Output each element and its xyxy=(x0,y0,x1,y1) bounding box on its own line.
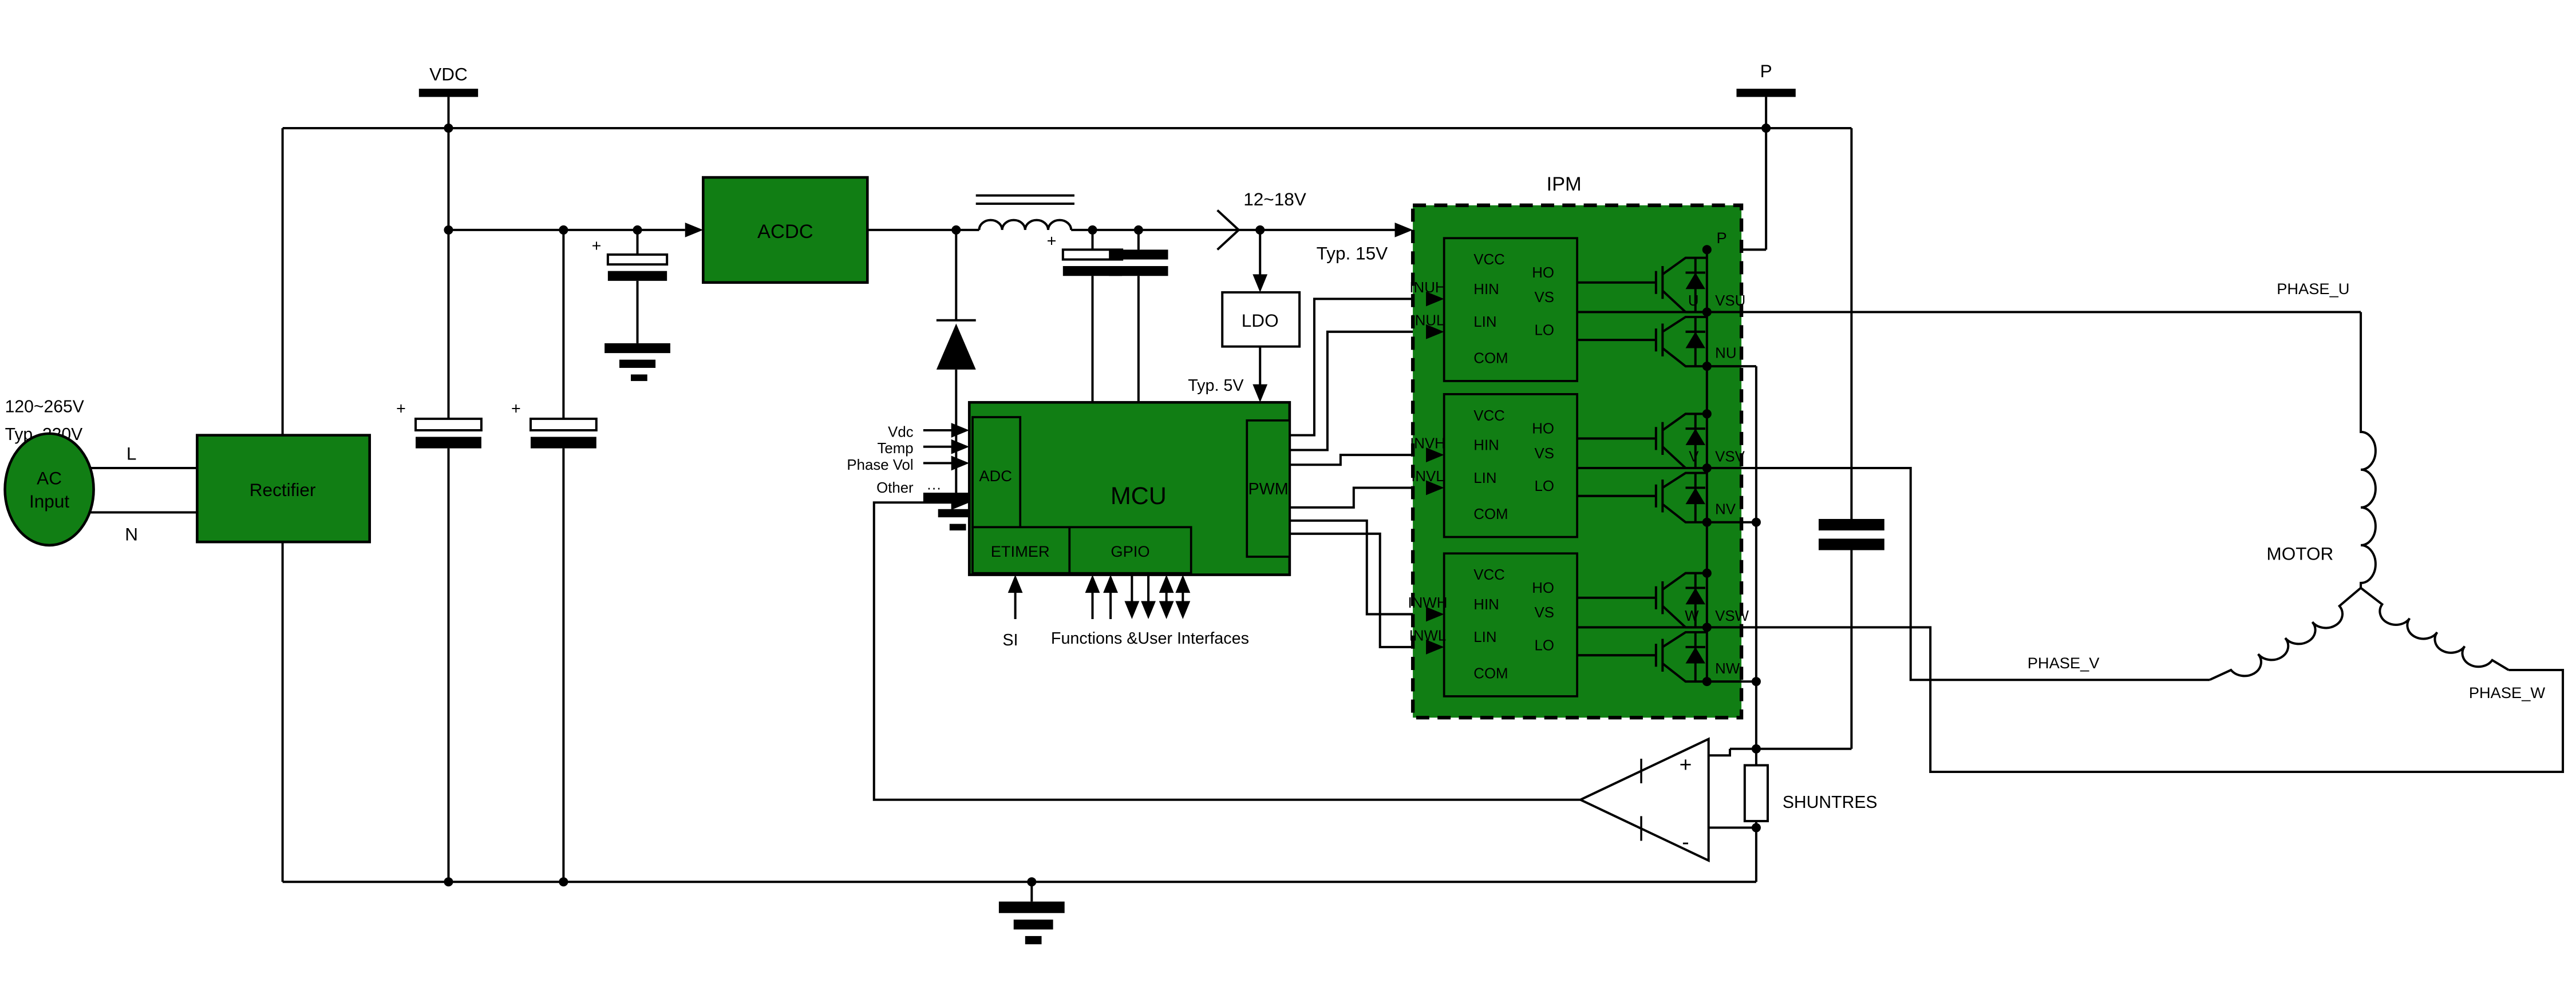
mcu-input-ellipsis: ··· xyxy=(927,480,942,496)
motor-w-winding xyxy=(2361,588,2508,670)
shunt-resistor xyxy=(1745,765,1768,821)
vdc-cap-plate-bot xyxy=(416,437,481,448)
driver-box-w xyxy=(1444,553,1577,696)
bulk-cap-plate-top xyxy=(531,419,596,430)
pin-vcc: VCC xyxy=(1473,408,1505,424)
motor-v-winding xyxy=(2210,588,2361,680)
buck-diode-icon xyxy=(937,320,976,370)
pin-vs: VS xyxy=(1534,290,1554,306)
dclink-cap-rail xyxy=(1730,128,1851,749)
motor-u-winding xyxy=(2361,312,2376,588)
node-vsv-label: VSV xyxy=(1715,449,1745,465)
etimer-label: ETIMER xyxy=(991,542,1050,560)
schematic-canvas: + + + + 120~265V Typ. 220V AC Input L N xyxy=(0,0,2576,987)
pwm-fanout-wires xyxy=(1290,299,1426,647)
mcu: MCU ADC ETIMER GPIO PWM Vdc Temp Phase V… xyxy=(847,402,1289,649)
bulk-cap-plus: + xyxy=(511,399,521,418)
inductor-core-lines xyxy=(976,196,1074,204)
node-nu-label: NU xyxy=(1715,346,1736,362)
inductor-coil xyxy=(979,220,1071,230)
ac-range-label: 120~265V xyxy=(5,397,84,416)
line-l-label: L xyxy=(127,443,137,464)
pin-ho: HO xyxy=(1532,580,1554,596)
motor: MOTOR xyxy=(2210,312,2508,680)
motor-drive-schematic: + + + + 120~265V Typ. 220V AC Input L N xyxy=(0,0,2576,987)
ldo-label: LDO xyxy=(1242,310,1279,331)
vdc-cap-plate-top xyxy=(416,419,481,430)
vdc-terminal-bar xyxy=(419,89,478,97)
functions-label: Functions &User Interfaces xyxy=(1051,629,1249,648)
pin-hin: HIN xyxy=(1473,282,1499,298)
driver-box-u xyxy=(1444,238,1577,381)
pin-vs: VS xyxy=(1534,605,1554,621)
rectifier-label: Rectifier xyxy=(250,479,316,500)
opamp-plus-sign: + xyxy=(1680,752,1692,776)
pin-lin: LIN xyxy=(1473,629,1496,645)
si-label: SI xyxy=(1002,631,1018,649)
lc-cap1-plus: + xyxy=(1047,232,1057,251)
shunt-label: SHUNTRES xyxy=(1783,793,1878,812)
pin-com: COM xyxy=(1473,506,1508,522)
pin-lo: LO xyxy=(1534,478,1554,494)
lc-cap2-plate-bot xyxy=(1109,266,1168,276)
pin-lo: LO xyxy=(1534,323,1554,339)
motor-label: MOTOR xyxy=(2266,544,2333,564)
line-n-label: N xyxy=(125,524,138,544)
node-u-label: U xyxy=(1688,293,1699,309)
node-vsw-label: VSW xyxy=(1715,608,1749,624)
mcu-input-other-label: Other xyxy=(876,480,914,496)
pin-ho: HO xyxy=(1532,421,1554,437)
typ-15v-label: Typ. 15V xyxy=(1317,243,1388,264)
mcu-input-vdc-label: Vdc xyxy=(888,424,914,440)
ac-input-label2: Input xyxy=(29,491,69,512)
bulk-cap-plate-bot xyxy=(531,437,596,448)
ipm-p-node-label: P xyxy=(1717,229,1727,247)
pin-lin: LIN xyxy=(1473,314,1496,330)
pin-lo: LO xyxy=(1534,638,1554,654)
pin-vcc: VCC xyxy=(1473,567,1505,583)
typ-5v-label: Typ. 5V xyxy=(1188,376,1244,395)
input-cap-plus: + xyxy=(592,237,602,255)
acdc-label: ACDC xyxy=(757,221,813,243)
node-nv-label: NV xyxy=(1715,501,1736,517)
driver-box-v xyxy=(1444,394,1577,537)
lc-cap2-plate-top xyxy=(1109,249,1168,259)
filter-inductor xyxy=(976,196,1074,230)
p-terminal-label: P xyxy=(1760,61,1772,81)
bus-12-18-label: 12~18V xyxy=(1243,189,1306,209)
ipm: IPM P VCC HIN LIN COM HO VS LO INUH INUL… xyxy=(1408,173,1749,718)
ac-input-ellipse xyxy=(5,434,94,545)
p-terminal-bar xyxy=(1736,89,1795,97)
opamp-plus-stub xyxy=(1709,749,1730,755)
gpio-label: GPIO xyxy=(1111,542,1149,560)
ground-icon xyxy=(605,343,670,381)
node-w-label: W xyxy=(1685,608,1699,624)
pin-com: COM xyxy=(1473,665,1508,681)
phase-v-label: PHASE_V xyxy=(2028,654,2100,672)
pin-lin: LIN xyxy=(1473,470,1496,486)
ac-input-label1: AC xyxy=(37,468,62,489)
mcu-input-temp-label: Temp xyxy=(878,441,914,457)
phase-w-label: PHASE_W xyxy=(2469,684,2546,701)
current-sense: SHUNTRES + - xyxy=(1581,739,1878,882)
pin-hin: HIN xyxy=(1473,597,1499,613)
adc-label: ADC xyxy=(979,467,1012,485)
node-vsu-label: VSU xyxy=(1715,293,1745,309)
ground-icon xyxy=(999,902,1065,945)
opamp-minus-sign: - xyxy=(1682,830,1689,854)
phase-u-label: PHASE_U xyxy=(2277,280,2349,298)
aux-supply: 12~18V Typ. 15V LDO Typ. 5V xyxy=(1188,189,1388,395)
pin-hin: HIN xyxy=(1473,437,1499,453)
pin-vcc: VCC xyxy=(1473,252,1505,268)
pin-com: COM xyxy=(1473,350,1508,366)
pin-ho: HO xyxy=(1532,265,1554,281)
ipm-label: IPM xyxy=(1547,173,1582,195)
vdc-terminal-label: VDC xyxy=(429,64,468,85)
pwm-label: PWM xyxy=(1249,480,1289,498)
mcu-input-phasevol-label: Phase Vol xyxy=(847,457,913,473)
node-v-label: V xyxy=(1689,449,1699,465)
vdc-cap-plus: + xyxy=(396,399,406,418)
input-cap-plate-top xyxy=(608,255,667,264)
dclink-cap-plate-bot xyxy=(1819,538,1884,550)
dclink-cap-plate-top xyxy=(1819,519,1884,530)
ac-source: 120~265V Typ. 220V AC Input L N Rectifie… xyxy=(5,397,370,545)
node-nw-label: NW xyxy=(1715,661,1740,677)
pin-vs: VS xyxy=(1534,446,1554,462)
input-cap-plate-bot xyxy=(608,271,667,281)
mcu-label: MCU xyxy=(1111,482,1167,510)
